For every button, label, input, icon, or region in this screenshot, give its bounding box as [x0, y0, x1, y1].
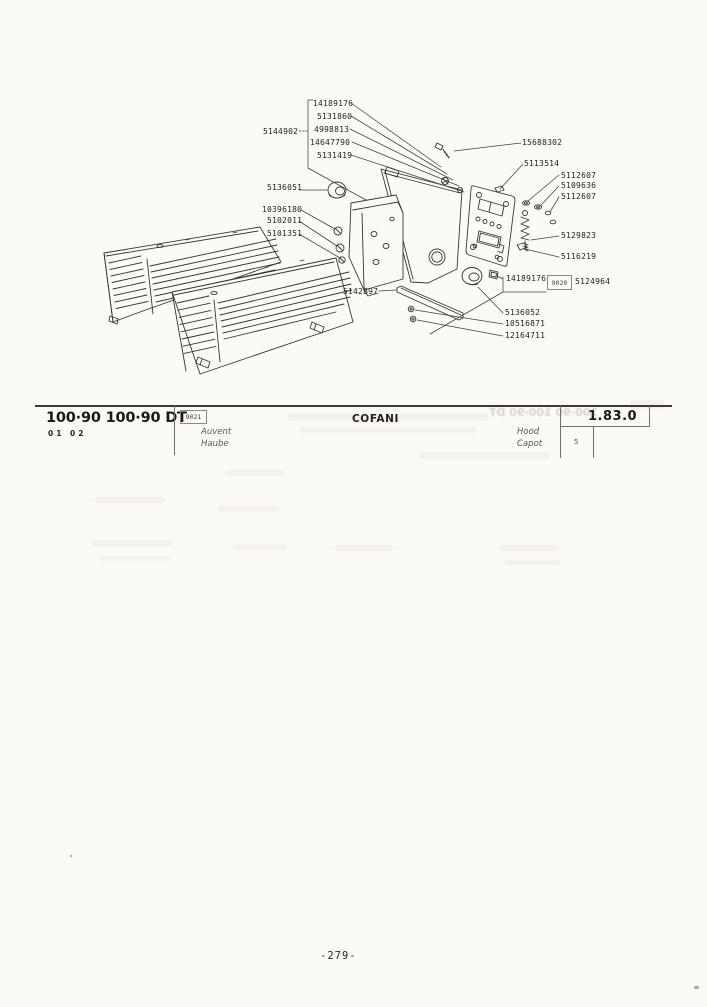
part-label: 10396180: [262, 205, 302, 214]
part-label: 5109636: [561, 181, 596, 190]
part-label: 15688302: [522, 138, 562, 147]
part-label: 4998813: [314, 125, 349, 134]
square-nut: [489, 270, 498, 279]
header-rule: [560, 426, 650, 427]
part-label: 14189176: [313, 99, 353, 108]
bleedthrough-artifact: [420, 452, 550, 459]
part-label: 5112607: [561, 192, 596, 201]
bleedthrough-artifact: [505, 560, 560, 565]
bleedthrough-artifact: [335, 545, 393, 551]
screw: [435, 143, 449, 158]
header-code-box: 9021: [180, 410, 207, 424]
part-label: 5113514: [524, 159, 559, 168]
catalog-page: 14189176 5131860 4998813 14647790 513141…: [0, 0, 707, 1007]
bleedthrough-artifact: [300, 427, 475, 433]
model-title: 100·90 100·90 DT: [46, 410, 187, 426]
bleedthrough-artifact: [218, 506, 280, 512]
bleedthrough-artifact: [500, 545, 560, 551]
bleedthrough-text: 100·90 100·90 DT: [506, 406, 598, 419]
scan-speck: [694, 986, 699, 989]
part-label: 5144902: [263, 127, 298, 136]
title-english: Hood: [517, 427, 539, 437]
bleedthrough-artifact: [630, 400, 664, 409]
header-divider: [649, 406, 650, 427]
bleedthrough-artifact: [95, 497, 165, 503]
title-french-2: Capot: [517, 439, 542, 449]
part-label: 5116219: [561, 252, 596, 261]
bleedthrough-artifact: [288, 414, 488, 421]
exploded-parts-drawing: [0, 0, 707, 1007]
model-variants: 01 02: [48, 429, 87, 438]
part-label: 10516871: [505, 319, 545, 328]
header-divider: [174, 406, 175, 455]
modification-code-box: 9020: [547, 275, 572, 290]
part-label: 5129823: [561, 231, 596, 240]
dash-panel: [466, 186, 515, 266]
part-label: 5112607: [561, 171, 596, 180]
part-label: 5131860: [317, 112, 352, 121]
scan-speck: [70, 855, 72, 857]
part-label: 12164711: [505, 331, 545, 340]
part-label: 5124964: [575, 277, 610, 286]
part-label: 5136051: [267, 183, 302, 192]
part-label: 5142897: [343, 287, 378, 296]
title-french: Auvent: [201, 427, 231, 437]
bushing: [462, 268, 482, 285]
bleedthrough-artifact: [225, 470, 285, 476]
title-german: Haube: [201, 439, 229, 449]
support-bracket: [349, 195, 403, 296]
part-label: 5102011: [267, 216, 302, 225]
sheet-number: 5: [574, 438, 578, 446]
part-label: 14189176: [506, 274, 546, 283]
part-label: 5101351: [267, 229, 302, 238]
clip: [495, 186, 504, 192]
part-label: 14647790: [310, 138, 350, 147]
part-label: 5136052: [505, 308, 540, 317]
part-label: 5131419: [317, 151, 352, 160]
page-number: -279-: [320, 950, 357, 962]
bleedthrough-artifact: [100, 556, 170, 561]
bleedthrough-artifact: [232, 544, 287, 550]
bleedthrough-artifact: [92, 540, 172, 546]
header-divider: [593, 427, 594, 458]
